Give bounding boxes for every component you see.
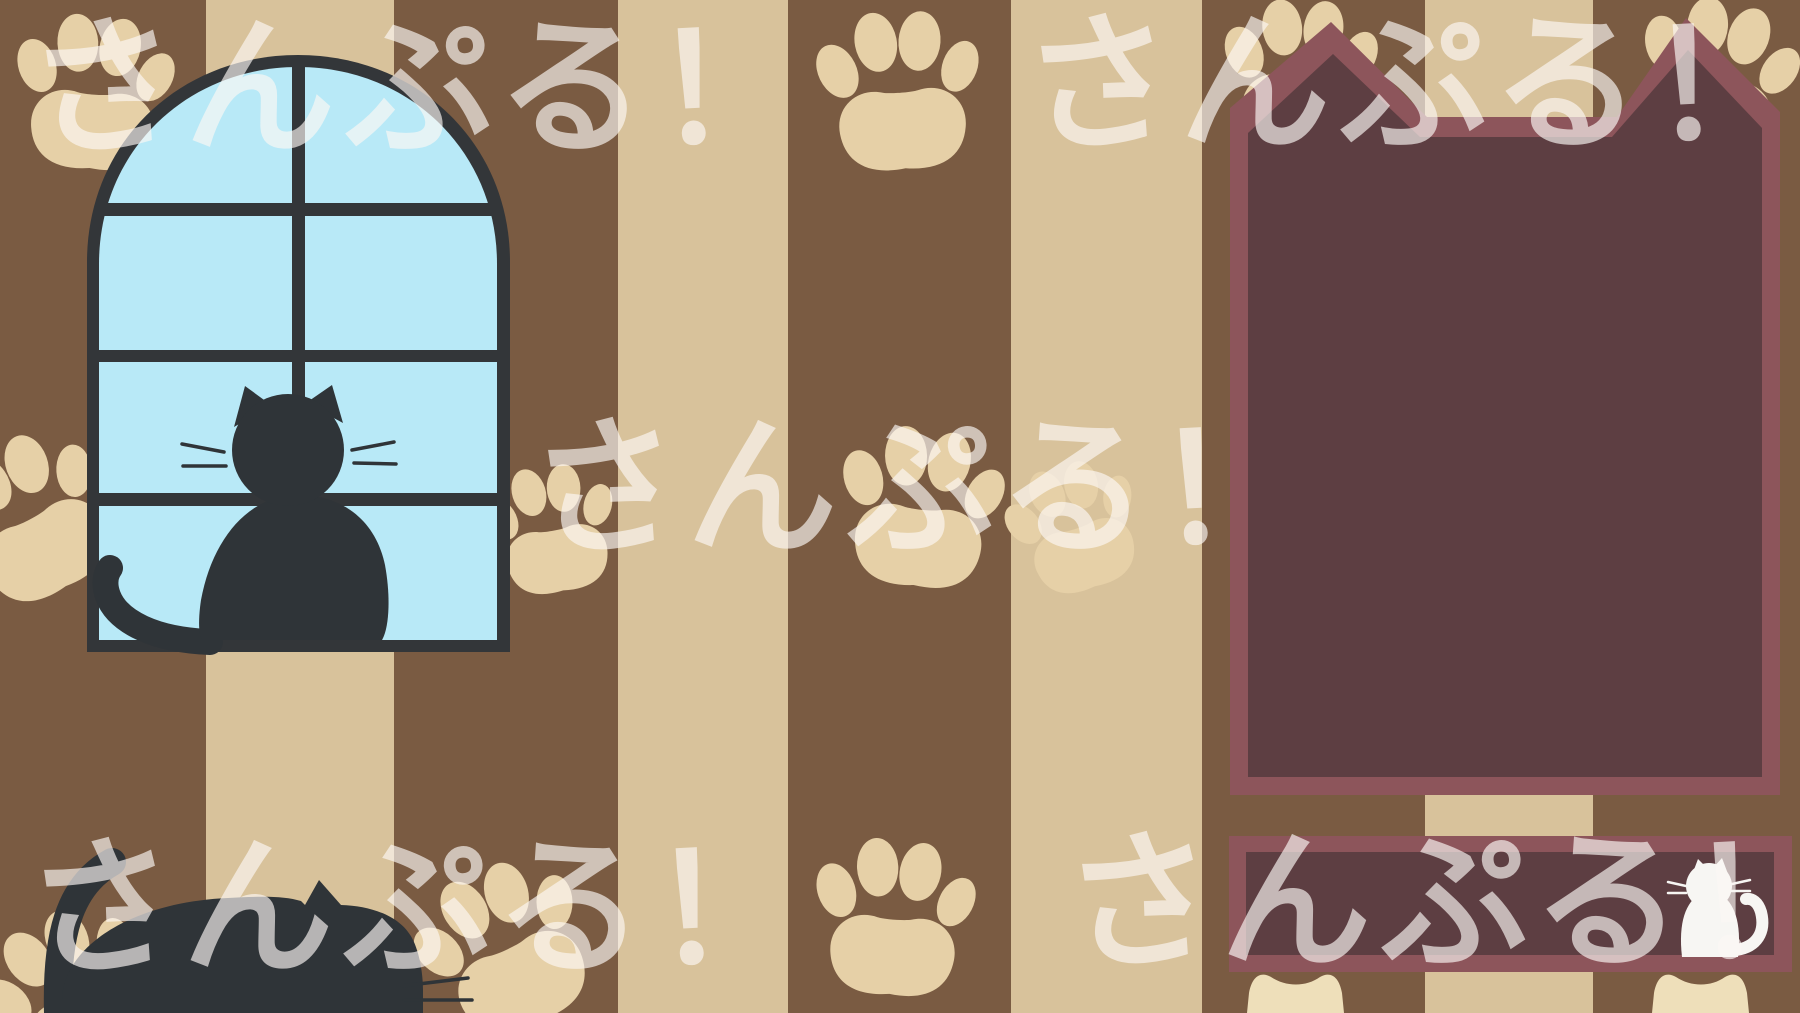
- scene-illustration: [0, 0, 1800, 1013]
- illustration-canvas: さんぷる！ さんぷる！ さんぷる！ さんぷる！ さんぷる！: [0, 0, 1800, 1013]
- cat-ear-signboard-large: [1230, 18, 1780, 795]
- signboard-face: [1248, 50, 1762, 777]
- cat-head: [232, 394, 344, 506]
- cat-head: [1686, 863, 1732, 909]
- arched-window: [87, 55, 510, 652]
